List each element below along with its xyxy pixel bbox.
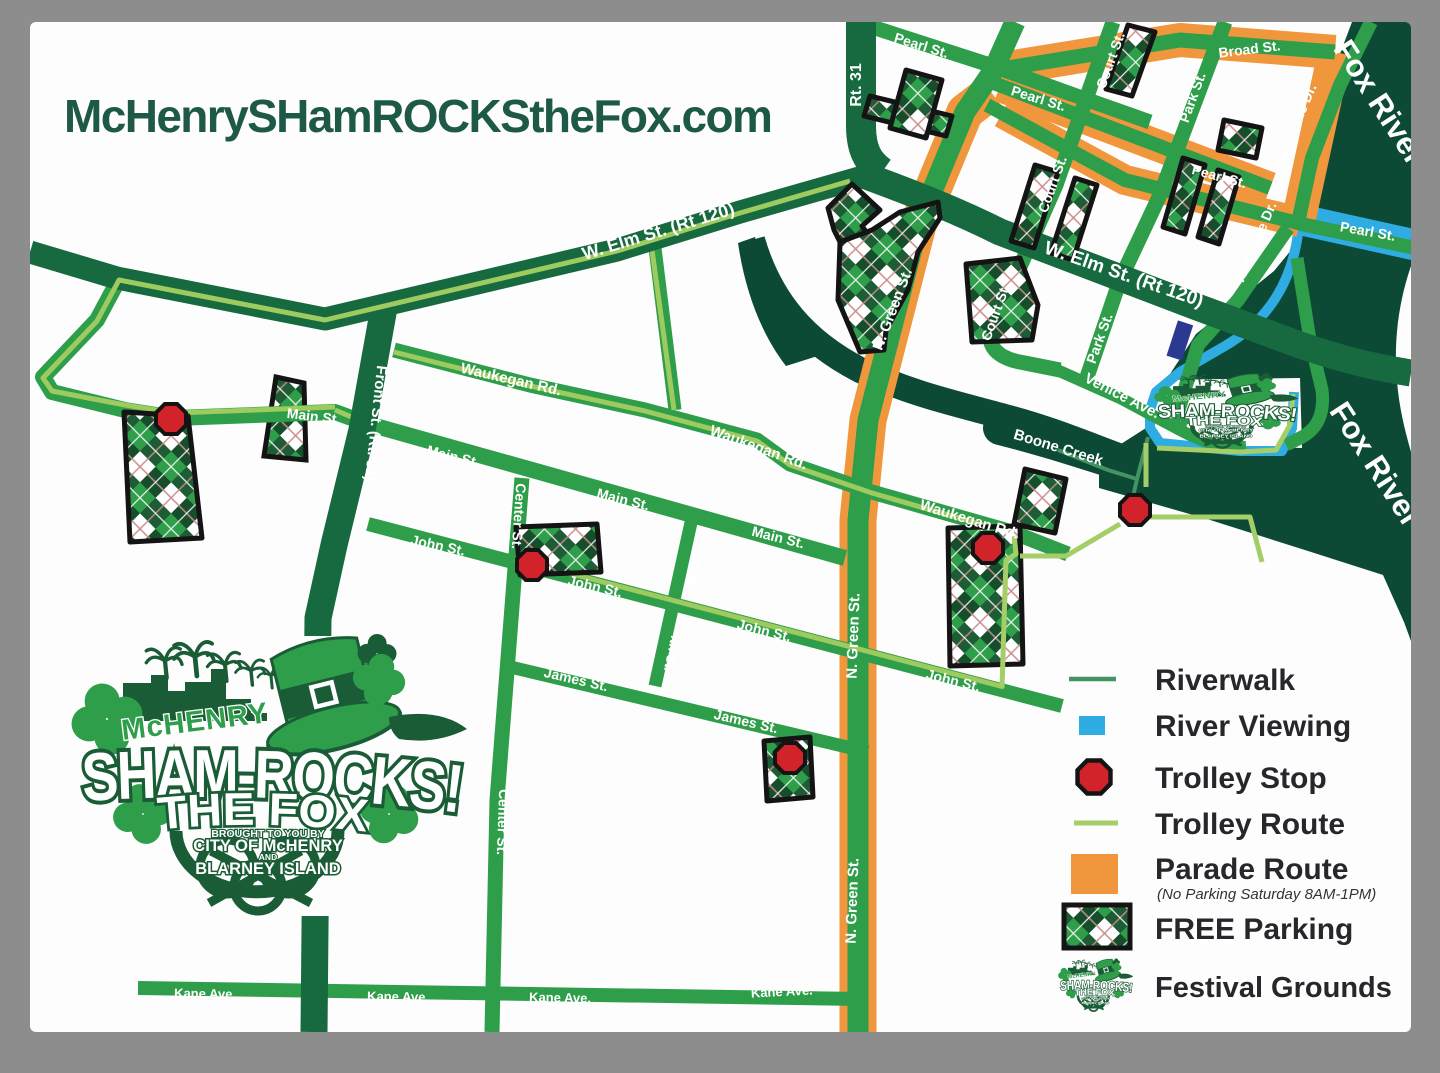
svg-text:Kane Ave.: Kane Ave. — [529, 989, 591, 1005]
svg-text:N. Green St.: N. Green St. — [843, 858, 863, 944]
svg-text:Parade Route: Parade Route — [1155, 853, 1348, 886]
svg-text:Festival Grounds: Festival Grounds — [1155, 972, 1392, 1004]
svg-text:(No Parking Saturday 8AM-1PM): (No Parking Saturday 8AM-1PM) — [1157, 886, 1376, 903]
svg-text:FREE Parking: FREE Parking — [1155, 913, 1353, 946]
svg-text:Kane Ave.: Kane Ave. — [367, 988, 429, 1004]
svg-text:Kane Ave.: Kane Ave. — [174, 985, 236, 1001]
svg-text:Rt. 31: Rt. 31 — [848, 63, 865, 107]
svg-text:Center St.: Center St. — [494, 789, 512, 856]
svg-text:Riverwalk: Riverwalk — [1155, 664, 1295, 697]
svg-text:N. Green St.: N. Green St. — [844, 593, 864, 679]
svg-text:River Viewing: River Viewing — [1155, 710, 1351, 743]
svg-text:McHenrySHamROCKStheFox.com: McHenrySHamROCKStheFox.com — [64, 90, 771, 142]
svg-text:Trolley Route: Trolley Route — [1155, 808, 1345, 841]
svg-text:Trolley Stop: Trolley Stop — [1155, 762, 1327, 795]
